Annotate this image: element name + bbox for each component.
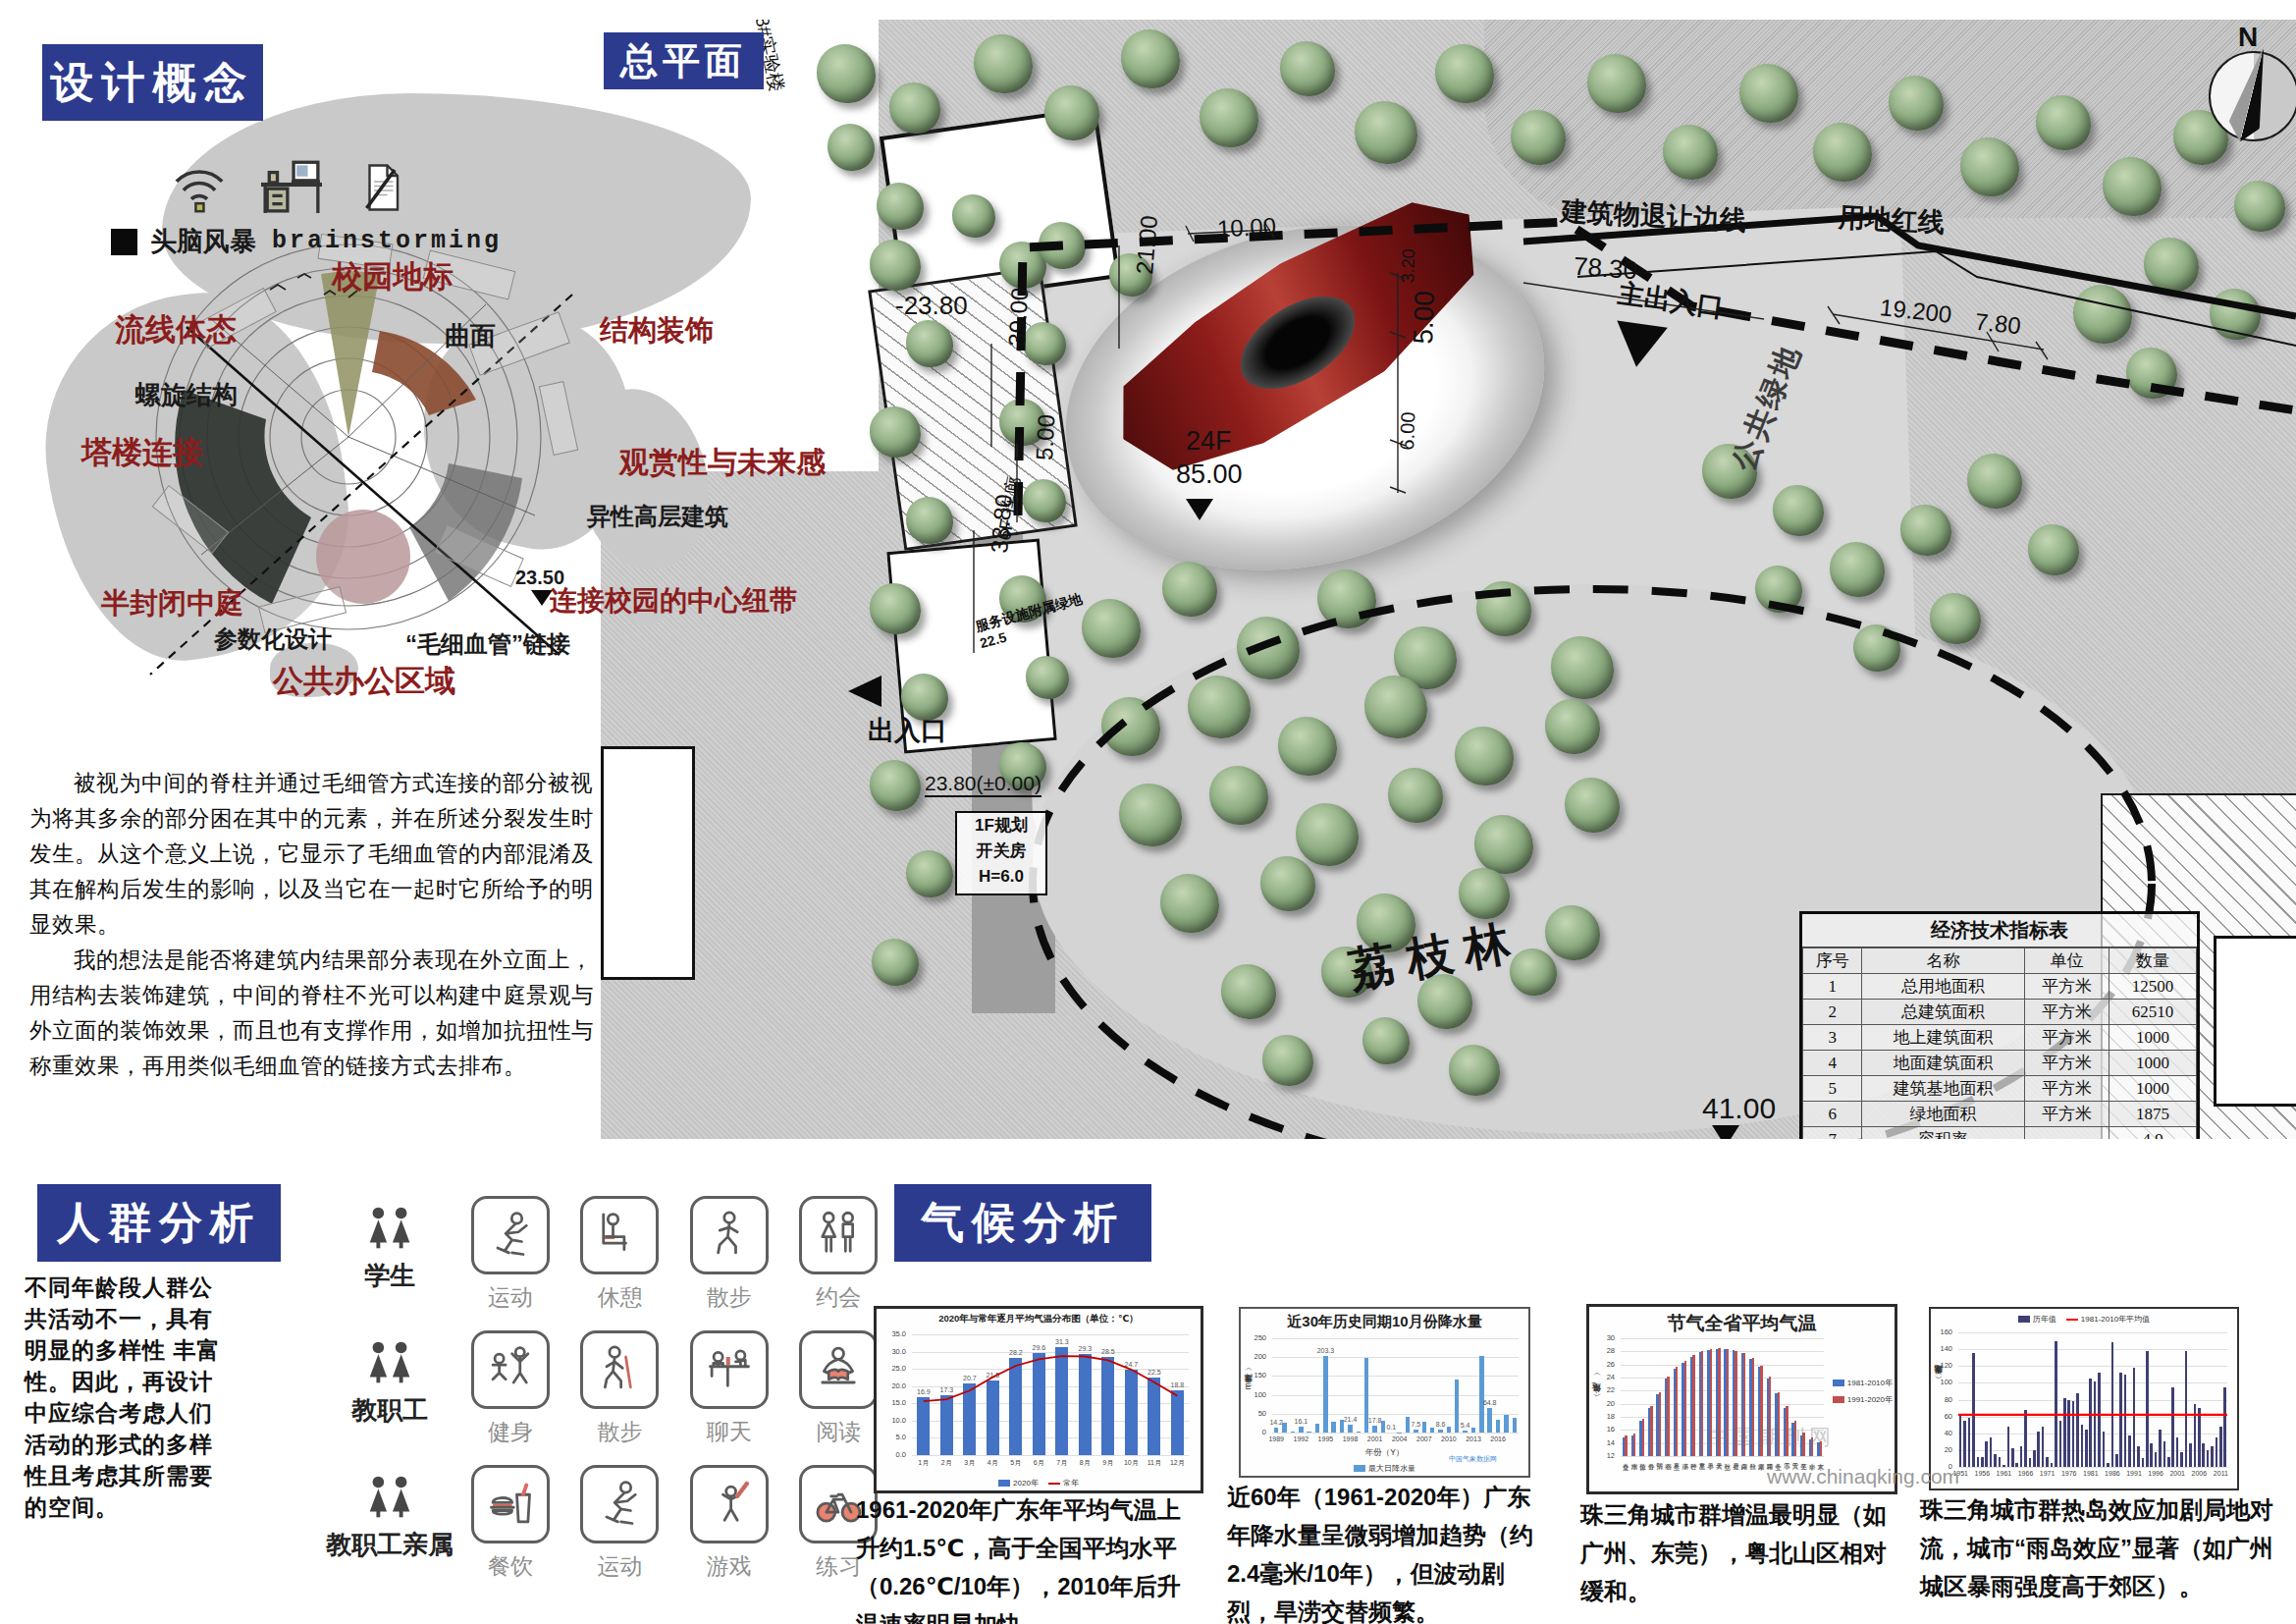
bar: [1422, 1422, 1427, 1433]
persona-row: 学生运动休憩散步约会: [324, 1196, 893, 1313]
bar: [1504, 1415, 1509, 1433]
switch-house-line3: H=6.0: [979, 867, 1024, 886]
x-tick: 2011: [2203, 1470, 2238, 1477]
economic-indicator-table: 经济技术指标表序号名称单位数量1总用地面积平方米125002总建筑面积平方米62…: [1799, 911, 2200, 1139]
activity-label: 运动: [455, 1282, 564, 1313]
gridline: [1272, 1338, 1519, 1339]
y-axis-label: 降水量（mm）: [1242, 1376, 1254, 1389]
table-cell: 6: [1803, 1102, 1862, 1127]
table-cell: 1: [1803, 974, 1862, 1000]
activity-label: 聊天: [674, 1417, 783, 1447]
gridline: [1621, 1365, 1824, 1366]
activity-label: 散步: [565, 1417, 674, 1447]
dim-41-00: 41.00: [1702, 1092, 1776, 1125]
stretch-icon: [471, 1330, 550, 1409]
section-header-crowd-analysis: 人群分析: [37, 1184, 281, 1262]
chart-october-rainfall: 近30年历史同期10月份降水量05010015020025014.216.120…: [1239, 1307, 1530, 1478]
bar-label: 21.4: [1337, 1416, 1364, 1423]
legend-item: 常年: [1048, 1478, 1079, 1489]
bar: [1650, 1406, 1652, 1456]
activity-label: 游戏: [674, 1551, 783, 1582]
label-central-link: 连接校园的中心纽带: [550, 582, 797, 620]
cane-icon: [580, 1330, 659, 1409]
people-group-icon: [359, 1204, 420, 1251]
label-brainstorm-cn: 头脑风暴: [150, 224, 256, 259]
persona-row: 教职工健身散步聊天阅读: [324, 1330, 893, 1447]
bar: [1372, 1426, 1377, 1433]
read-icon: [799, 1330, 878, 1409]
table-cell: 总建筑面积: [1862, 1000, 2024, 1025]
table-cell: 平方米: [2024, 1051, 2109, 1076]
table-row: 7容积率4.9: [1803, 1127, 2197, 1140]
activity-item: 游戏: [674, 1465, 783, 1582]
document-pen-icon: [362, 160, 403, 215]
gridline: [1621, 1338, 1824, 1339]
dim-10-00: 10.00: [1216, 212, 1276, 243]
table-cell: 总用地面积: [1862, 974, 2024, 1000]
activity-item: 散步: [674, 1196, 783, 1313]
persona-group: 学生: [324, 1196, 455, 1293]
table-cell: 平方米: [2024, 974, 2109, 1000]
chart-title: 近30年历史同期10月份降水量: [1241, 1313, 1528, 1331]
table-cell: 1000: [2109, 1051, 2197, 1076]
watermark: 中国期刊网: [1707, 1423, 1835, 1452]
legend: 1981-2010年1991-2020年: [1833, 1378, 1893, 1405]
gridline: [1621, 1351, 1824, 1352]
switch-house-box: 1F规划 开关房 H=6.0: [955, 811, 1047, 895]
label-tower-floors: 24F: [1186, 426, 1232, 457]
concept-description: 被视为中间的脊柱并通过毛细管方式连接的部分被视为将其多余的部分困在其中的元素，并…: [29, 766, 609, 1084]
table-cell: 1000: [2109, 1076, 2197, 1102]
table-cell: 平方米: [2024, 1076, 2109, 1102]
x-tick: 2016: [1480, 1435, 1516, 1442]
section-header-climate-analysis: 气候分析: [894, 1184, 1151, 1262]
bat-icon: [690, 1465, 769, 1543]
chart-annual-rainfall: 0204060801001201401601951195619611966197…: [1929, 1307, 2239, 1490]
x-tick: 夏至: [1697, 1458, 1706, 1488]
bar: [1659, 1392, 1661, 1456]
watermark-url: www.chinaqking.com: [1767, 1465, 1959, 1489]
label-campus-landmark: 校园地标: [332, 256, 454, 298]
gridline: [1621, 1390, 1824, 1391]
label-parametric-design: 参数化设计: [214, 623, 332, 655]
bar: [1282, 1423, 1287, 1433]
activity-label: 散步: [674, 1282, 783, 1313]
walk-icon: [690, 1196, 769, 1274]
activity-label: 运动: [565, 1551, 674, 1582]
chart-line-layer: [1931, 1309, 2237, 1489]
persona-group-name: 教职工亲属: [324, 1528, 455, 1562]
legend-item: 1981-2010年: [1833, 1378, 1893, 1388]
concept-paragraph-1: 被视为中间的脊柱并通过毛细管方式连接的部分被视为将其多余的部分困在其中的元素，并…: [29, 766, 609, 943]
table-row: 6绿地面积平方米1875: [1803, 1102, 2197, 1127]
compass-n-label: N: [2238, 22, 2258, 53]
table-row: 5建筑基地面积平方米1000: [1803, 1076, 2197, 1102]
dim-3-20: 3.20: [1398, 248, 1419, 284]
sit-icon: [580, 1196, 659, 1274]
label-brainstorm-en: brainstorming: [272, 227, 502, 255]
gridline: [1621, 1404, 1824, 1405]
activity-label: 餐饮: [455, 1551, 564, 1582]
legend: 2020年常年: [877, 1478, 1201, 1489]
elevation-marker: [1186, 499, 1213, 520]
activity-item: 运动: [565, 1465, 674, 1582]
activity-item: 运动: [455, 1196, 564, 1313]
legend-item: 2020年: [998, 1478, 1039, 1489]
caption-rainfall-trend: 近60年（1961-2020年）广东年降水量呈微弱增加趋势（约2.4毫米/10年…: [1227, 1478, 1547, 1624]
x-tick: 处暑: [1731, 1458, 1739, 1488]
concept-paragraph-2: 我的想法是能否将建筑内结果部分表现在外立面上，用结构去装饰建筑，中间的脊柱不光可…: [29, 943, 609, 1084]
bar: [1331, 1422, 1336, 1433]
label-tower-connection: 塔楼连接: [81, 432, 203, 473]
y-tick: 200: [1241, 1352, 1266, 1361]
people-group-icon: [359, 1473, 420, 1520]
bar: [1291, 1432, 1296, 1433]
bar: [1299, 1427, 1304, 1433]
label-capillary-link: “毛细血管”链接: [405, 628, 570, 660]
bar: [1667, 1377, 1669, 1456]
table-cell: 容积率: [1862, 1127, 2024, 1140]
bar: [1307, 1432, 1311, 1433]
legend-item: 历年值: [2018, 1314, 2056, 1325]
bar-label: 64.8: [1476, 1399, 1504, 1406]
collage-wedge-dark: [175, 390, 311, 604]
table-header: 序号: [1803, 948, 1862, 974]
elevation-marker: [1712, 1125, 1739, 1139]
couple-icon: [799, 1196, 878, 1274]
table-cell: 7: [1803, 1127, 1862, 1140]
bar: [1479, 1356, 1484, 1433]
label-spiral-structure: 螺旋结构: [135, 378, 238, 412]
main-entrance-arrow: [1611, 321, 1668, 371]
persona-row: 教职工亲属餐饮运动游戏练习: [324, 1465, 893, 1582]
bar: [1315, 1424, 1320, 1433]
label-view-future: 观赏性与未来感: [619, 443, 826, 483]
switch-house-line2: 开关房: [977, 841, 1027, 860]
table-header: 名称: [1862, 948, 2024, 974]
bar-label: 0.1: [1377, 1424, 1405, 1431]
y-tick: 100: [1241, 1390, 1266, 1399]
dim-21-00: 21.00: [1131, 214, 1163, 275]
legend: 历年值1981-2010年平均值: [1931, 1314, 2237, 1325]
persona-group: 教职工: [324, 1330, 455, 1428]
chat-icon: [690, 1330, 769, 1409]
master-plan-section: 8#实验楼 -23.80 10.00 21.00 39.00 5.00 33.8…: [601, 20, 2296, 1139]
bar: [1513, 1418, 1518, 1433]
y-tick: 14: [1589, 1438, 1615, 1447]
y-tick: 26: [1589, 1360, 1615, 1369]
label-structure-decoration: 结构装饰: [600, 311, 714, 351]
label-semi-enclosed-atrium: 半封闭中庭: [101, 584, 243, 623]
table-row: 1总用地面积平方米12500: [1803, 974, 2197, 1000]
persona-activity-grid: 学生运动休憩散步约会教职工健身散步聊天阅读教职工亲属餐饮运动游戏练习: [324, 1196, 893, 1599]
y-tick: 20: [1589, 1399, 1615, 1408]
bar: [1430, 1428, 1435, 1433]
bar: [1676, 1367, 1678, 1456]
x-tick: 谷雨: [1663, 1458, 1672, 1488]
gridline: [1621, 1378, 1824, 1379]
x-tick: 雨水: [1629, 1458, 1638, 1488]
table-cell: 3: [1803, 1025, 1862, 1051]
chart-title: 节气全省平均气温: [1589, 1311, 1895, 1336]
crowd-description: 不同年龄段人群公共活动不一，具有明显的多样性 丰富性。因此，再设计中应综合考虑人…: [25, 1272, 231, 1523]
table-cell: 建筑基地面积: [1862, 1076, 2024, 1102]
skate-icon: [580, 1465, 659, 1543]
caption-pearl-delta-warming: 珠三角城市群增温最明显（如广州、东莞），粤北山区相对缓和。: [1580, 1495, 1908, 1610]
watermark: 中国气象数据网: [1449, 1454, 1497, 1464]
label-streamline-form: 流线体态: [115, 309, 237, 351]
skate-icon: [471, 1196, 550, 1274]
label-public-office: 公共办公区域: [273, 661, 455, 702]
table-cell: 平方米: [2024, 1000, 2109, 1025]
legend-item: 1981-2010年平均值: [2066, 1314, 2150, 1325]
table-cell: 62510: [2109, 1000, 2197, 1025]
caption-rain-island-effect: 珠三角城市群热岛效应加剧局地对流，城市“雨岛效应”显著（如广州城区暴雨强度高于郊…: [1920, 1490, 2285, 1605]
table-row: 3地上建筑面积平方米1000: [1803, 1025, 2197, 1051]
activity-label: 健身: [455, 1417, 564, 1447]
persona-group-name: 学生: [324, 1259, 455, 1293]
table-header: 单位: [2024, 948, 2109, 974]
persona-group: 教职工亲属: [324, 1465, 455, 1562]
switch-house-line1: 1F规划: [975, 816, 1028, 835]
bar: [1692, 1355, 1694, 1456]
activity-label: 休憩: [565, 1282, 674, 1313]
legend-item: 最大日降水量: [1354, 1463, 1415, 1474]
y-tick: 50: [1241, 1409, 1266, 1418]
table-row: 4地面建筑面积平方米1000: [1803, 1051, 2197, 1076]
table-cell: 平方米: [2024, 1025, 2109, 1051]
table-cell: 1000: [2109, 1025, 2197, 1051]
activity-item: 餐饮: [455, 1465, 564, 1582]
section-header-master-plan: 总平面: [604, 32, 764, 89]
table-row: 2总建筑面积平方米62510: [1803, 1000, 2197, 1025]
table-cell: 12500: [2109, 974, 2197, 1000]
label-red-line: 用地红线: [1838, 199, 1946, 241]
bar: [1274, 1428, 1279, 1434]
table-cell: 5: [1803, 1076, 1862, 1102]
activity-item: 健身: [455, 1330, 564, 1447]
caption-temperature-trend: 1961-2020年广东年平均气温上升约1.5℃，高于全国平均水平（0.26℃/…: [856, 1490, 1201, 1624]
label-curved-surface: 曲面: [445, 319, 496, 353]
label-entrance: 出入口: [868, 713, 947, 748]
table-cell: 1875: [2109, 1102, 2197, 1127]
section-header-design-concept: 设计概念: [42, 44, 263, 121]
y-tick: 12: [1589, 1451, 1615, 1460]
chart-monthly-temperature: 2020年与常年逐月平均气温分布图（单位：℃）0.05.010.015.020.…: [874, 1306, 1203, 1493]
bar: [1633, 1434, 1635, 1456]
label-tower-height: 85.00: [1176, 460, 1243, 490]
y-tick: 28: [1589, 1346, 1615, 1355]
dim-5-00-right: 5.00: [1408, 291, 1441, 346]
y-tick: 250: [1241, 1333, 1266, 1342]
dim-6-00: 6.00: [1396, 411, 1419, 451]
table-cell: 平方米: [2024, 1102, 2109, 1127]
bar: [1471, 1428, 1476, 1433]
bar: [1625, 1435, 1627, 1456]
activity-item: 约会: [784, 1196, 893, 1313]
design-concept-section: 头脑风暴 brainstorming 校园地标 流线体态 曲面 结构装饰 螺旋结…: [25, 93, 854, 707]
table-cell: 2: [1803, 1000, 1862, 1025]
food-icon: [471, 1465, 550, 1543]
bar: [1642, 1419, 1644, 1456]
wifi-icon: [170, 164, 229, 213]
persona-group-name: 教职工: [324, 1393, 455, 1428]
y-tick: 18: [1589, 1412, 1615, 1421]
bar: [1414, 1430, 1418, 1433]
dim-7-80: 7.80: [1974, 308, 2022, 341]
gridline: [1272, 1433, 1519, 1434]
bar: [1496, 1420, 1501, 1433]
label-atypical-highrise: 异性高层建筑: [587, 501, 728, 532]
table-cell: 4.9: [2109, 1127, 2197, 1140]
activity-item: 休憩: [565, 1196, 674, 1313]
activity-item: 散步: [565, 1330, 674, 1447]
activity-item: 聊天: [674, 1330, 783, 1447]
bar: [1357, 1432, 1362, 1433]
dim-39-00: 39.00: [1003, 287, 1034, 347]
y-tick: 16: [1589, 1425, 1615, 1434]
bar: [1684, 1361, 1686, 1456]
bar: [1323, 1356, 1328, 1433]
table-title: 经济技术指标表: [1802, 914, 2197, 947]
table-cell: 4: [1803, 1051, 1862, 1076]
label-elev-minus-2380: -23.80: [895, 291, 968, 321]
desk-computer-icon: [255, 154, 328, 215]
dim-5-00-left: 5.00: [1031, 413, 1060, 460]
legend-item: 1991-2020年: [1833, 1394, 1893, 1405]
bar: [1463, 1431, 1468, 1433]
label-elev-2380: 23.80(±0.00): [925, 772, 1041, 797]
table-cell: 地上建筑面积: [1862, 1025, 2024, 1051]
bar: [1447, 1427, 1452, 1433]
y-tick: 30: [1589, 1333, 1615, 1342]
gridline: [1621, 1456, 1824, 1457]
bar: [1438, 1430, 1443, 1433]
bar-label: 203.3: [1311, 1347, 1339, 1354]
table-cell: [2024, 1127, 2109, 1140]
y-axis-label: 气温（单位：℃）: [1590, 1380, 1602, 1399]
table-header: 数量: [2109, 948, 2197, 974]
table-cell: 绿地面积: [1862, 1102, 2024, 1127]
x-tick: 12月: [1159, 1458, 1195, 1468]
bar-label: 16.1: [1287, 1418, 1314, 1425]
bar: [1487, 1408, 1492, 1433]
bullet-square: [111, 229, 137, 255]
bar: [1701, 1351, 1703, 1456]
bar: [1348, 1425, 1353, 1433]
legend: 最大日降水量: [1241, 1463, 1528, 1474]
people-group-icon: [359, 1338, 420, 1385]
table-cell: 地面建筑面积: [1862, 1051, 2024, 1076]
